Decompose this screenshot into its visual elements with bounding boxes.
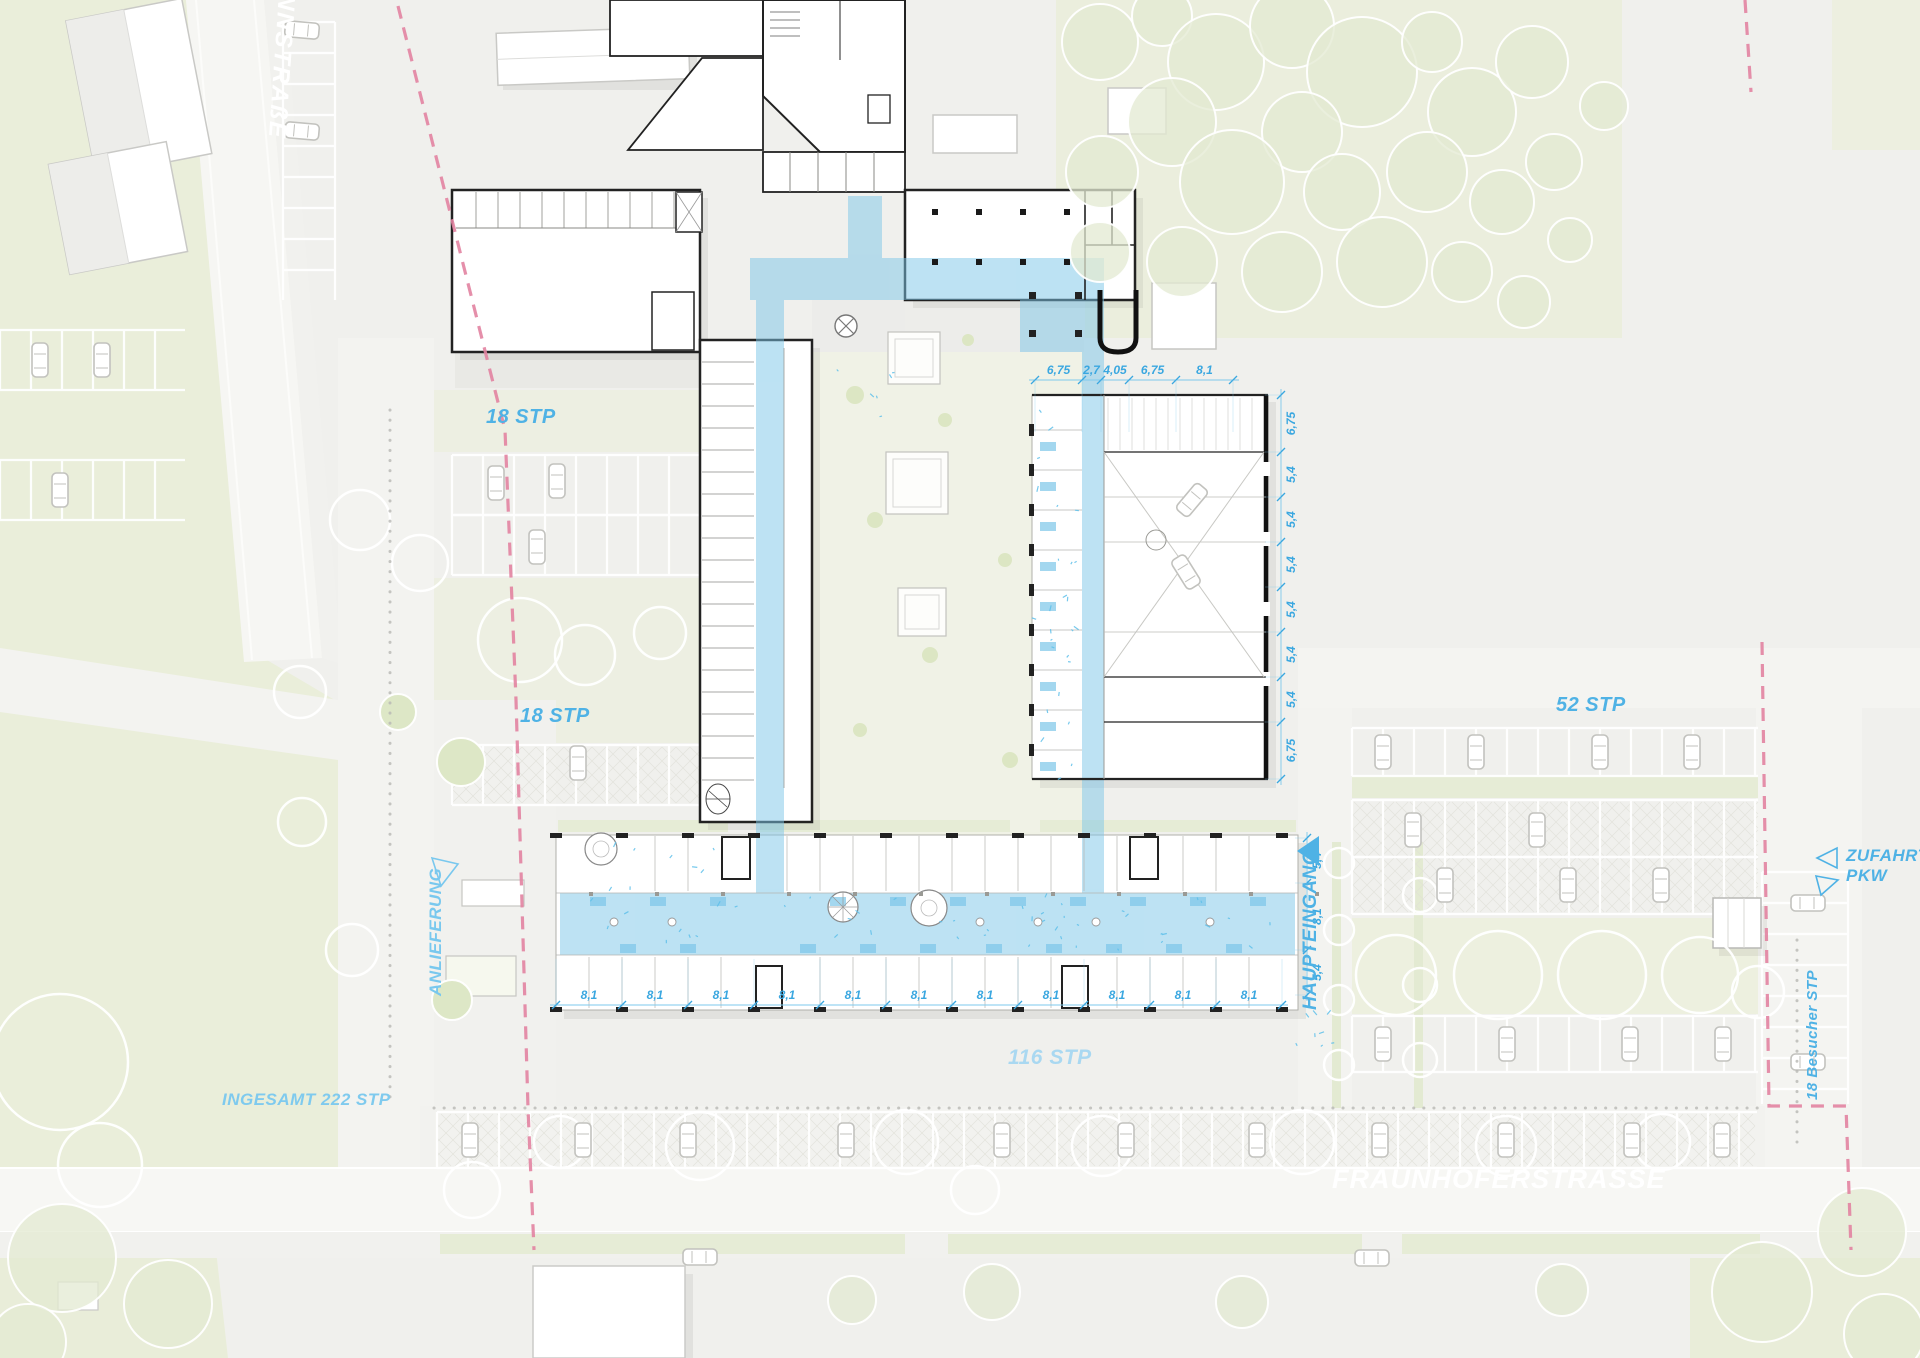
dim-label: 4,05	[1102, 363, 1127, 377]
car-icon	[1249, 1123, 1265, 1157]
street-fraunhofer	[0, 1168, 1920, 1232]
car-icon	[1529, 813, 1545, 847]
dim-label: 6,75	[1284, 411, 1298, 435]
dim-label: 8,1	[581, 988, 598, 1002]
dim-label: 6,75	[1284, 738, 1298, 762]
dim-label: 5,4	[1284, 466, 1298, 483]
dim-label: 8,1	[1043, 988, 1060, 1002]
car-icon	[575, 1123, 591, 1157]
dim-label: 8,1	[647, 988, 664, 1002]
site-plan: 6,752,74,056,758,16,755,45,45,45,45,45,4…	[0, 0, 1920, 1358]
dim-label: 8,1	[911, 988, 928, 1002]
dim-label: 8,1	[845, 988, 862, 1002]
car-icon	[32, 343, 48, 377]
dim-label: 8,1	[1310, 908, 1324, 925]
car-icon	[1560, 868, 1576, 902]
car-icon	[1437, 868, 1453, 902]
dim-label: 5,4	[1284, 646, 1298, 663]
dim-label: 2,7	[1082, 363, 1101, 377]
dim-label: 8,1	[779, 988, 796, 1002]
dim-label: 8,1	[1109, 988, 1126, 1002]
dim-label: 6,75	[1141, 363, 1165, 377]
car-icon	[284, 122, 319, 141]
car-icon	[1375, 1027, 1391, 1061]
car-icon	[570, 746, 586, 780]
car-icon	[838, 1123, 854, 1157]
car-icon	[1791, 895, 1825, 911]
car-icon	[52, 473, 68, 507]
car-icon	[529, 530, 545, 564]
car-icon	[680, 1123, 696, 1157]
dim-label: 8,1	[1175, 988, 1192, 1002]
car-icon	[1499, 1027, 1515, 1061]
dim-label: 8,1	[1196, 363, 1213, 377]
dim-label: 5,4	[1284, 601, 1298, 618]
car-icon	[1624, 1123, 1640, 1157]
car-icon	[1372, 1123, 1388, 1157]
dim-label: 5,4	[1284, 556, 1298, 573]
dim-label: 6,75	[1047, 363, 1071, 377]
car-icon	[462, 1123, 478, 1157]
car-icon	[1684, 735, 1700, 769]
car-icon	[284, 21, 319, 40]
dim-label: 8,1	[977, 988, 994, 1002]
car-icon	[488, 466, 504, 500]
car-icon	[994, 1123, 1010, 1157]
car-icon	[1468, 735, 1484, 769]
existing-house-2	[48, 142, 187, 275]
existing-west-bar	[452, 190, 700, 352]
dim-label: 5,4	[1284, 691, 1298, 708]
dim-label: 8,1	[1241, 988, 1258, 1002]
parking-kiosk	[1713, 898, 1761, 948]
existing-connector	[763, 152, 905, 192]
car-icon	[1592, 735, 1608, 769]
existing-north-west	[610, 0, 763, 56]
building-south-of-street	[533, 1266, 685, 1358]
site-plan-drawing: 6,752,74,056,758,16,755,45,45,45,45,45,4…	[0, 0, 1920, 1358]
car-icon	[683, 1249, 717, 1265]
car-icon	[1375, 735, 1391, 769]
car-icon	[1405, 813, 1421, 847]
car-icon	[1498, 1123, 1514, 1157]
car-icon	[1118, 1123, 1134, 1157]
dim-label: 5,4	[1310, 964, 1324, 981]
car-icon	[1355, 1250, 1389, 1266]
car-icon	[1622, 1027, 1638, 1061]
car-icon	[549, 464, 565, 498]
car-icon	[1715, 1027, 1731, 1061]
car-icon	[1653, 868, 1669, 902]
car-icon	[94, 343, 110, 377]
dim-label: 8,1	[713, 988, 730, 1002]
car-icon	[1714, 1123, 1730, 1157]
dim-label: 5,4	[1284, 511, 1298, 528]
